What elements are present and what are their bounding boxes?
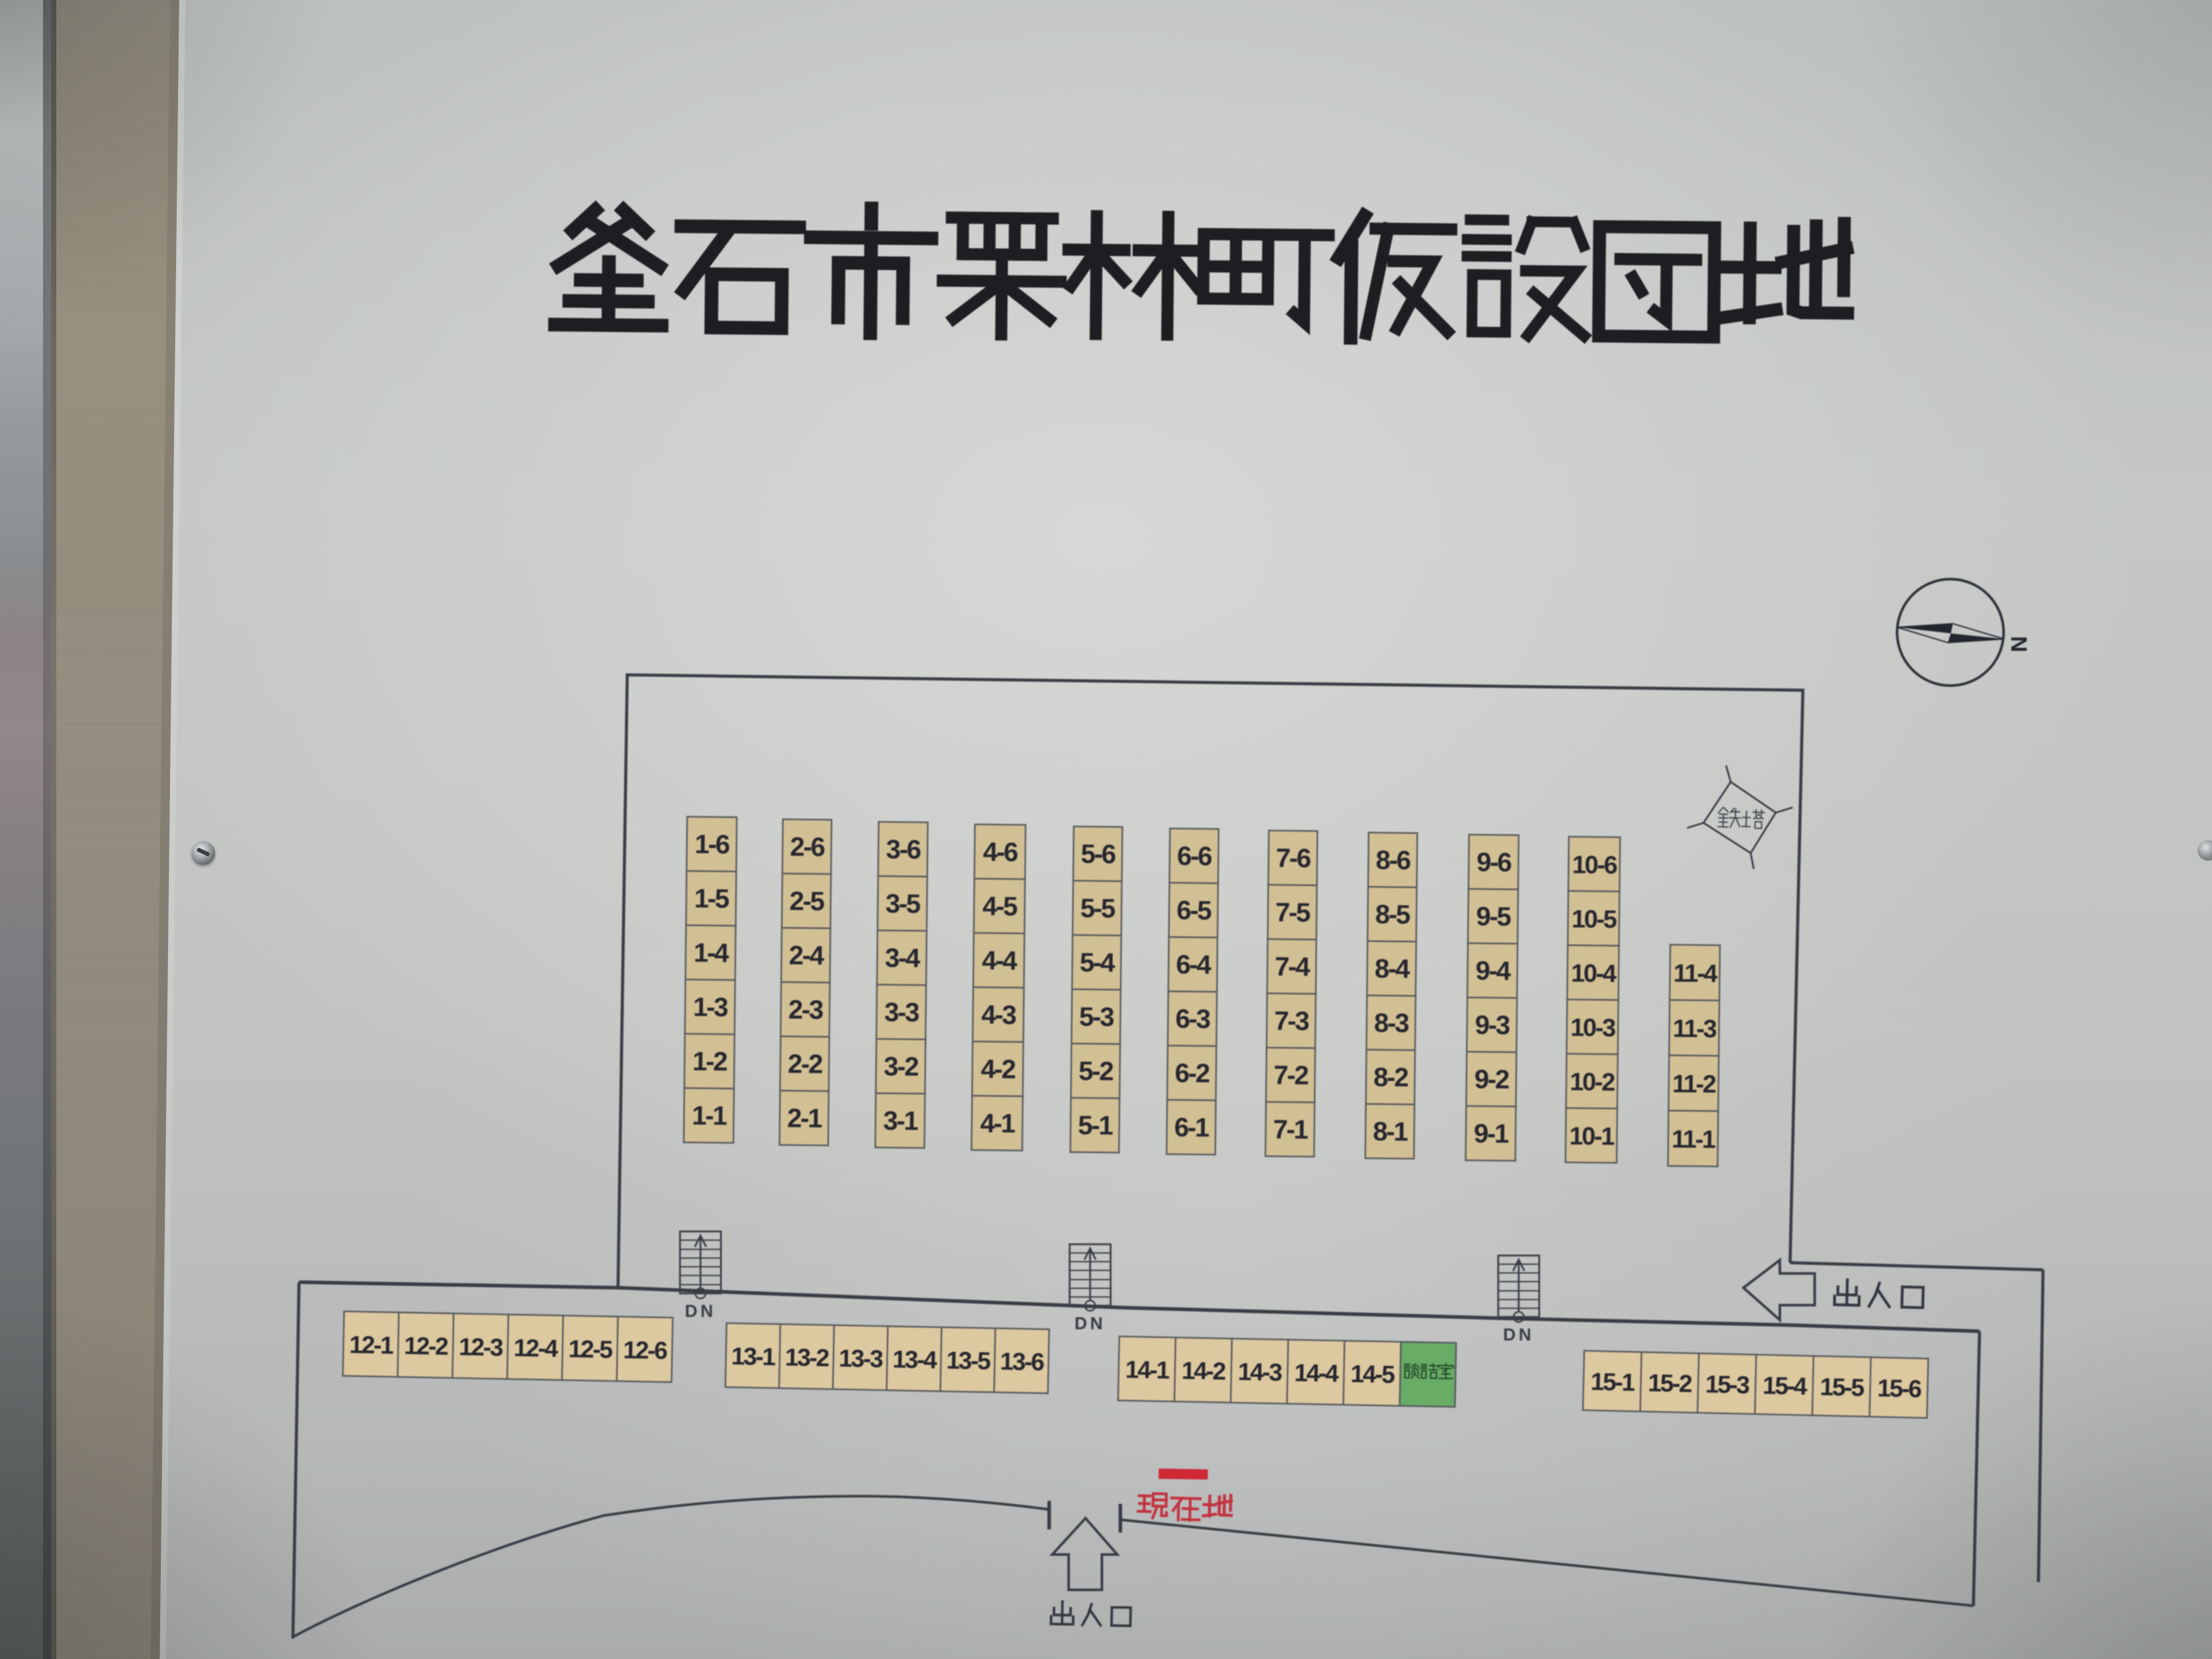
svg-text:13-3: 13-3	[839, 1345, 883, 1373]
svg-text:8-1: 8-1	[1373, 1117, 1408, 1147]
svg-text:5-1: 5-1	[1078, 1111, 1113, 1141]
svg-text:13-6: 13-6	[1000, 1348, 1044, 1376]
svg-text:14-1: 14-1	[1125, 1356, 1169, 1385]
svg-text:11-1: 11-1	[1672, 1125, 1716, 1154]
svg-text:3-3: 3-3	[884, 997, 920, 1028]
svg-text:4-3: 4-3	[981, 1000, 1016, 1030]
svg-text:5-4: 5-4	[1079, 948, 1115, 978]
svg-text:7-6: 7-6	[1276, 843, 1311, 874]
svg-text:2-2: 2-2	[788, 1049, 822, 1079]
svg-text:9-1: 9-1	[1474, 1119, 1509, 1149]
svg-text:7-2: 7-2	[1273, 1060, 1308, 1091]
svg-text:9-6: 9-6	[1477, 847, 1512, 878]
svg-text:12-1: 12-1	[349, 1331, 394, 1359]
svg-text:14-2: 14-2	[1181, 1357, 1225, 1386]
svg-text:3-1: 3-1	[883, 1106, 919, 1136]
svg-text:12-3: 12-3	[459, 1333, 503, 1362]
svg-text:10-5: 10-5	[1571, 905, 1617, 933]
svg-text:5-5: 5-5	[1080, 894, 1115, 924]
svg-text:8-2: 8-2	[1373, 1062, 1408, 1093]
svg-text:7-1: 7-1	[1273, 1115, 1308, 1145]
svg-text:1-4: 1-4	[693, 938, 729, 968]
svg-text:10-3: 10-3	[1570, 1014, 1615, 1042]
svg-text:14-3: 14-3	[1238, 1358, 1282, 1387]
svg-text:6-6: 6-6	[1177, 841, 1213, 871]
svg-text:DN: DN	[1074, 1314, 1105, 1333]
svg-text:6-2: 6-2	[1175, 1058, 1209, 1089]
svg-text:2-1: 2-1	[787, 1103, 822, 1134]
svg-text:14-4: 14-4	[1294, 1359, 1339, 1388]
svg-text:15-5: 15-5	[1820, 1373, 1865, 1401]
svg-text:9-3: 9-3	[1475, 1010, 1510, 1040]
svg-text:12-6: 12-6	[623, 1336, 667, 1365]
svg-text:7-4: 7-4	[1274, 952, 1310, 982]
svg-text:13-5: 13-5	[946, 1347, 991, 1375]
svg-text:12-4: 12-4	[514, 1334, 559, 1363]
svg-text:4-6: 4-6	[983, 837, 1018, 867]
svg-text:DN: DN	[1503, 1325, 1534, 1345]
svg-text:8-4: 8-4	[1374, 954, 1410, 984]
svg-text:15-1: 15-1	[1590, 1368, 1635, 1396]
svg-text:2-4: 2-4	[789, 941, 824, 971]
svg-text:10-1: 10-1	[1569, 1122, 1614, 1151]
svg-text:5-6: 5-6	[1081, 839, 1116, 869]
svg-text:3-5: 3-5	[885, 889, 921, 919]
svg-text:10-4: 10-4	[1571, 960, 1617, 988]
svg-text:10-6: 10-6	[1572, 851, 1617, 879]
svg-text:8-5: 8-5	[1375, 900, 1410, 930]
svg-text:13-1: 13-1	[731, 1343, 776, 1371]
svg-text:11-3: 11-3	[1673, 1015, 1717, 1043]
svg-text:15-4: 15-4	[1762, 1372, 1808, 1400]
svg-text:1-6: 1-6	[695, 829, 730, 860]
svg-text:9-2: 9-2	[1474, 1065, 1509, 1095]
svg-text:4-4: 4-4	[982, 946, 1017, 976]
svg-text:6-3: 6-3	[1175, 1004, 1210, 1034]
svg-text:1-3: 1-3	[693, 992, 728, 1023]
svg-text:9-5: 9-5	[1476, 902, 1511, 932]
svg-text:11-2: 11-2	[1672, 1070, 1716, 1098]
svg-text:4-2: 4-2	[981, 1054, 1015, 1084]
svg-text:4-5: 4-5	[982, 891, 1017, 922]
svg-text:12-5: 12-5	[568, 1335, 613, 1364]
svg-text:11-4: 11-4	[1673, 960, 1718, 988]
svg-text:1-2: 1-2	[692, 1047, 727, 1077]
svg-text:3-2: 3-2	[884, 1052, 919, 1082]
svg-text:12-2: 12-2	[404, 1332, 448, 1360]
svg-text:1-5: 1-5	[694, 884, 729, 914]
svg-text:2-6: 2-6	[790, 832, 825, 862]
svg-text:10-2: 10-2	[1570, 1068, 1615, 1096]
svg-text:15-6: 15-6	[1877, 1375, 1922, 1403]
svg-text:14-5: 14-5	[1350, 1360, 1395, 1389]
svg-text:8-3: 8-3	[1374, 1008, 1409, 1038]
svg-text:2-3: 2-3	[788, 995, 823, 1025]
svg-text:6-4: 6-4	[1176, 950, 1211, 980]
svg-text:13-4: 13-4	[892, 1346, 938, 1374]
svg-text:15-2: 15-2	[1648, 1370, 1692, 1398]
svg-text:8-6: 8-6	[1376, 845, 1411, 876]
svg-text:3-4: 3-4	[885, 943, 921, 973]
svg-text:2-5: 2-5	[789, 886, 824, 917]
svg-text:9-4: 9-4	[1475, 956, 1511, 986]
svg-text:N: N	[2006, 636, 2031, 652]
svg-text:15-3: 15-3	[1705, 1371, 1750, 1399]
svg-text:5-3: 5-3	[1079, 1002, 1114, 1032]
svg-text:4-1: 4-1	[980, 1109, 1015, 1139]
svg-text:13-2: 13-2	[785, 1344, 829, 1372]
svg-text:6-5: 6-5	[1176, 896, 1211, 926]
svg-text:DN: DN	[685, 1302, 716, 1321]
svg-text:1-1: 1-1	[692, 1101, 727, 1131]
svg-text:6-1: 6-1	[1174, 1113, 1209, 1143]
svg-text:7-5: 7-5	[1275, 898, 1310, 928]
svg-text:5-2: 5-2	[1078, 1056, 1113, 1087]
svg-text:3-6: 3-6	[886, 835, 921, 865]
svg-text:7-3: 7-3	[1274, 1006, 1309, 1036]
